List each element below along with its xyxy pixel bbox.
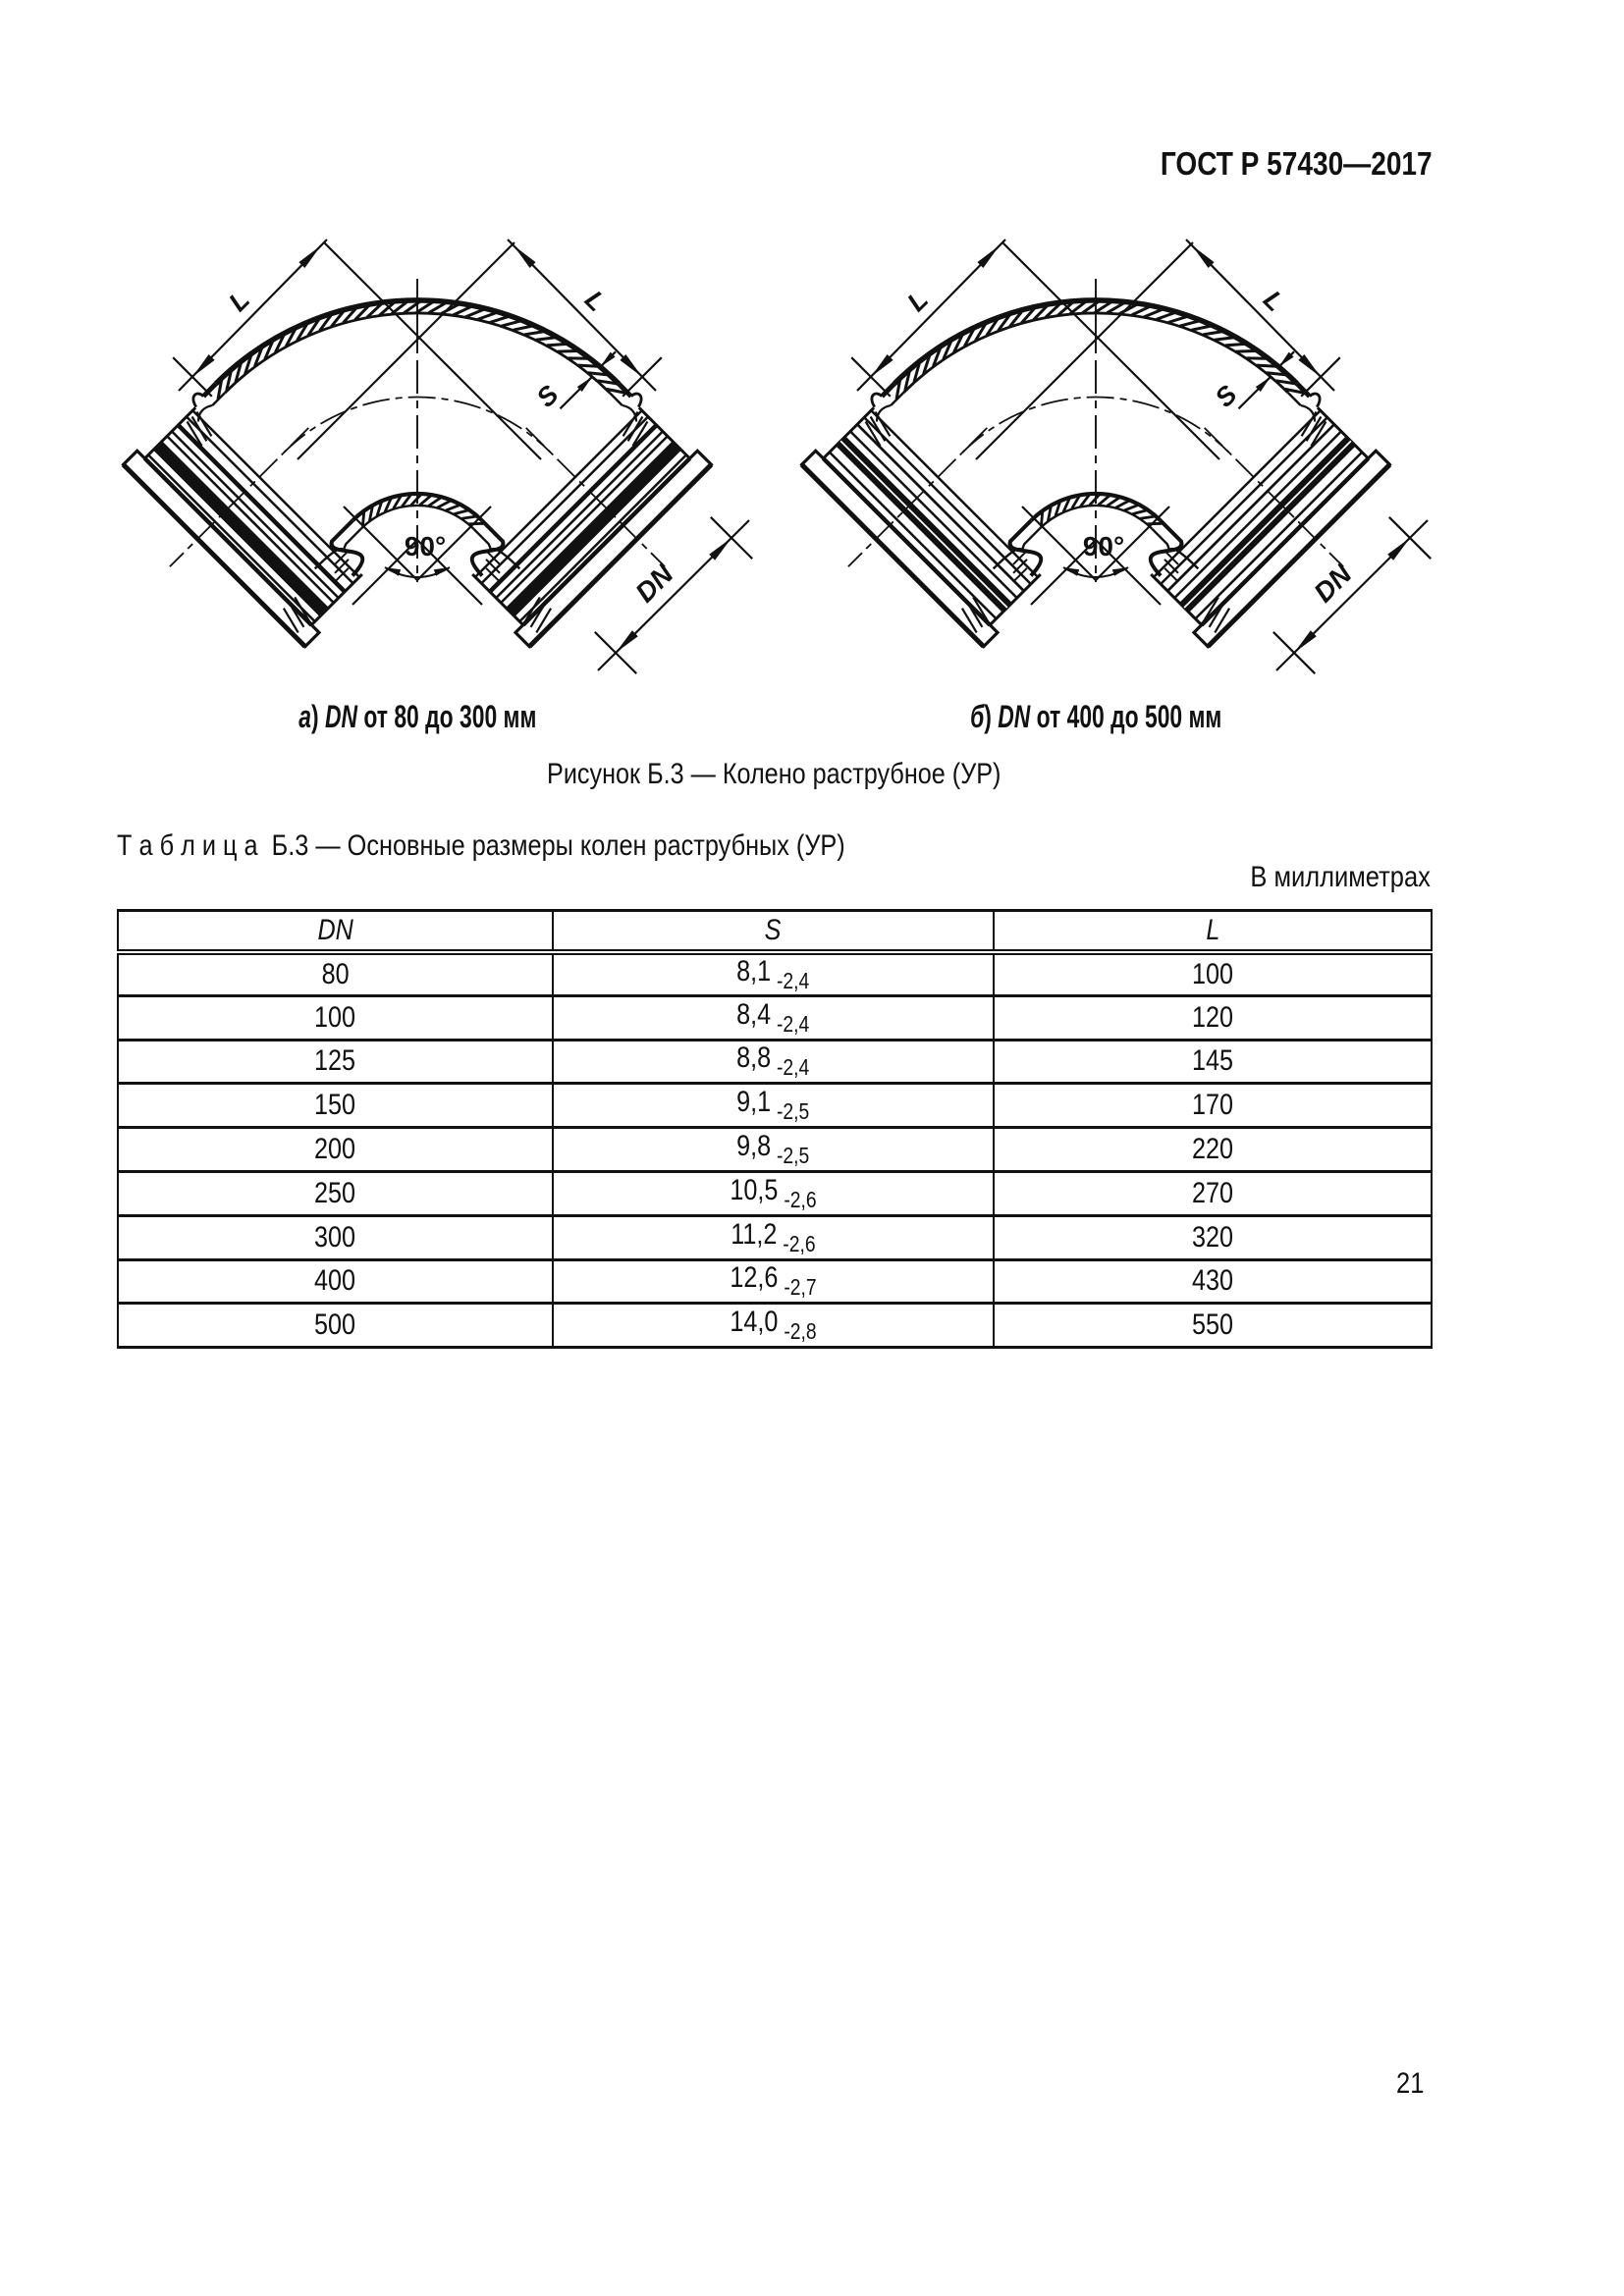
svg-text:L: L: [901, 285, 934, 317]
svg-text:90°: 90°: [1083, 531, 1124, 561]
svg-text:L: L: [223, 285, 255, 317]
svg-text:S: S: [531, 380, 565, 413]
svg-text:DN: DN: [629, 558, 679, 608]
svg-text:L: L: [579, 285, 612, 317]
svg-text:L: L: [1258, 285, 1290, 317]
svg-text:S: S: [1210, 380, 1243, 413]
svg-text:90°: 90°: [405, 531, 446, 561]
svg-text:DN: DN: [1308, 558, 1358, 608]
